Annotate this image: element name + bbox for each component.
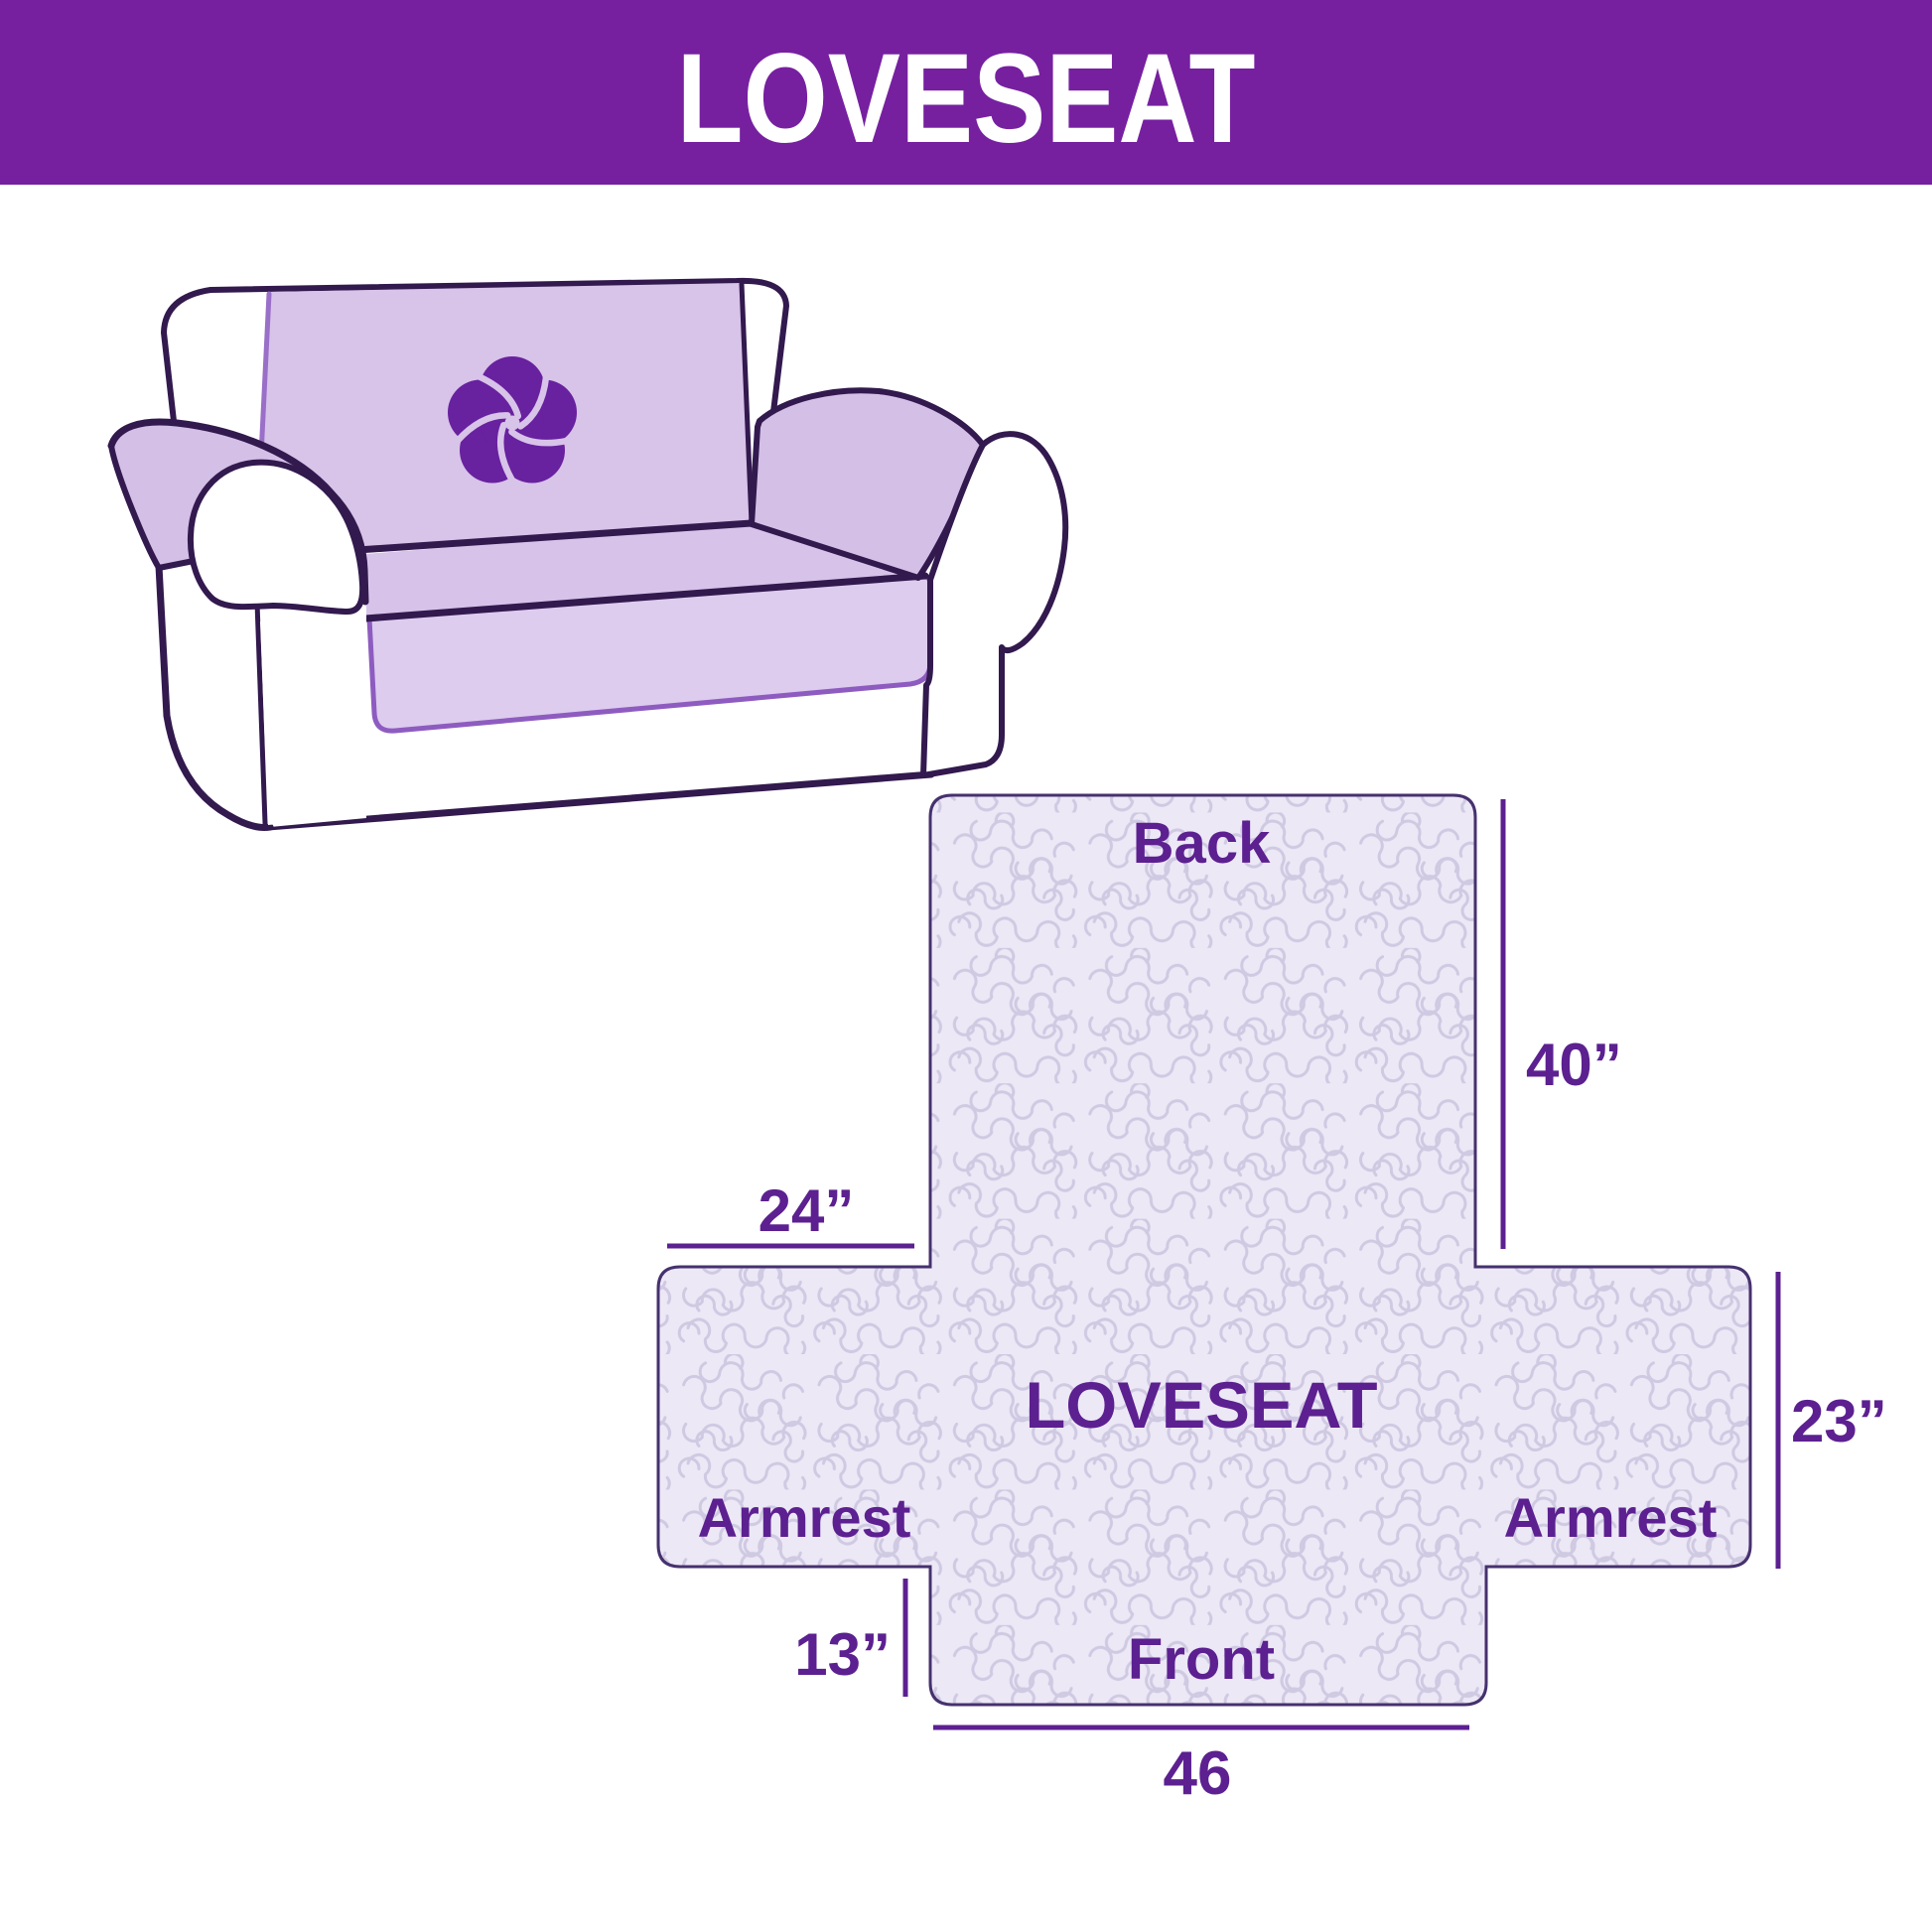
svg-text:46: 46 (1164, 1739, 1232, 1808)
svg-text:LOVESEAT: LOVESEAT (677, 28, 1256, 170)
svg-text:40”: 40” (1526, 1032, 1622, 1098)
svg-text:Front: Front (1128, 1627, 1275, 1692)
svg-text:Armrest: Armrest (1504, 1486, 1718, 1549)
svg-text:24”: 24” (759, 1177, 855, 1244)
svg-text:Armrest: Armrest (698, 1486, 911, 1549)
svg-text:13”: 13” (794, 1621, 891, 1688)
svg-text:LOVESEAT: LOVESEAT (1026, 1368, 1378, 1442)
svg-text:23”: 23” (1791, 1388, 1887, 1454)
svg-text:Back: Back (1133, 811, 1271, 876)
